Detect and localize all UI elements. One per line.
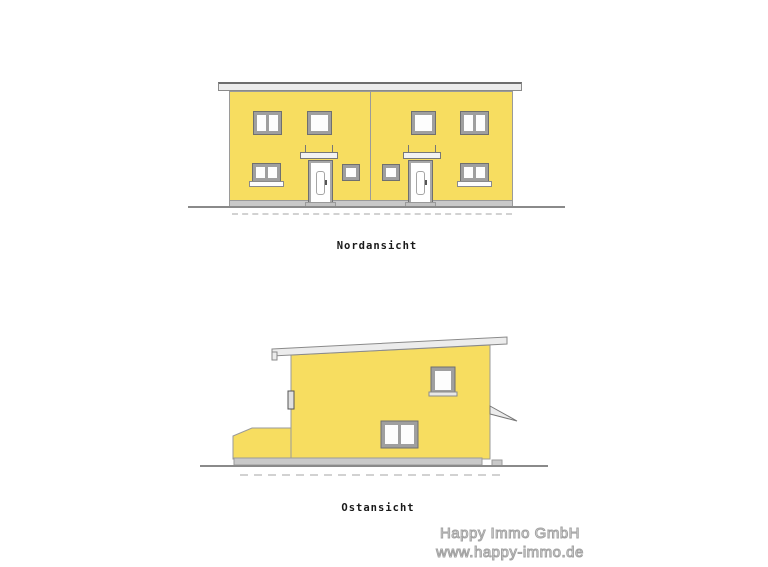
- north-right-entrance-door: [409, 161, 432, 204]
- east-elevation: [190, 325, 560, 485]
- north-ground-line: [188, 206, 565, 208]
- east-wall-edge-vent: [288, 391, 294, 409]
- north-elevation-caption: Nordansicht: [277, 240, 477, 252]
- east-upper-window-sill: [429, 392, 457, 396]
- east-plinth: [234, 458, 482, 465]
- watermark-website: www.happy-immo.de: [405, 543, 615, 562]
- window-pane: [476, 167, 485, 178]
- east-side-extension: [233, 428, 291, 459]
- north-upper-left-double-window: [253, 111, 282, 135]
- north-left-door-canopy: [300, 152, 338, 159]
- east-elevation-caption: Ostansicht: [278, 502, 478, 514]
- north-left-entrance-door: [309, 161, 332, 204]
- north-ground-right-double-window: [460, 163, 489, 182]
- north-flat-roof: [218, 82, 522, 91]
- north-foundation-dashes: [232, 213, 512, 215]
- window-pane: [464, 115, 473, 131]
- north-upper-right-double-window: [460, 111, 489, 135]
- east-canopy-side-view: [490, 406, 517, 421]
- east-ground-window-pane: [401, 425, 414, 444]
- window-pane: [386, 168, 396, 177]
- watermark: Happy Immo GmbH www.happy-immo.de: [405, 524, 615, 562]
- window-pane: [268, 167, 277, 178]
- north-ground-left-small-window: [342, 164, 360, 181]
- window-pane: [257, 115, 266, 131]
- party-wall-line: [370, 91, 371, 201]
- east-roof-gutter-hook: [272, 352, 277, 360]
- north-right-door-canopy: [403, 152, 441, 159]
- north-elevation: Nordansicht: [0, 0, 768, 280]
- watermark-company: Happy Immo GmbH: [405, 524, 615, 543]
- door-glazing: [316, 171, 325, 195]
- window-pane: [346, 168, 356, 177]
- window-sill: [249, 181, 284, 187]
- window-sill: [457, 181, 492, 187]
- window-pane: [476, 115, 485, 131]
- east-ground-window-pane: [385, 425, 398, 444]
- north-ground-right-small-window: [382, 164, 400, 181]
- north-ground-left-double-window: [252, 163, 281, 182]
- north-upper-right-single-window: [411, 111, 436, 135]
- door-handle: [325, 180, 327, 185]
- door-glazing: [416, 171, 425, 195]
- window-pane: [415, 115, 432, 131]
- window-pane: [311, 115, 328, 131]
- north-upper-left-single-window: [307, 111, 332, 135]
- window-pane: [269, 115, 278, 131]
- window-pane: [256, 167, 265, 178]
- east-upper-window-pane: [435, 371, 451, 390]
- door-handle: [425, 180, 427, 185]
- window-pane: [464, 167, 473, 178]
- elevation-drawing-sheet: Nordansicht Ostansicht Happy Immo GmbH: [0, 0, 768, 567]
